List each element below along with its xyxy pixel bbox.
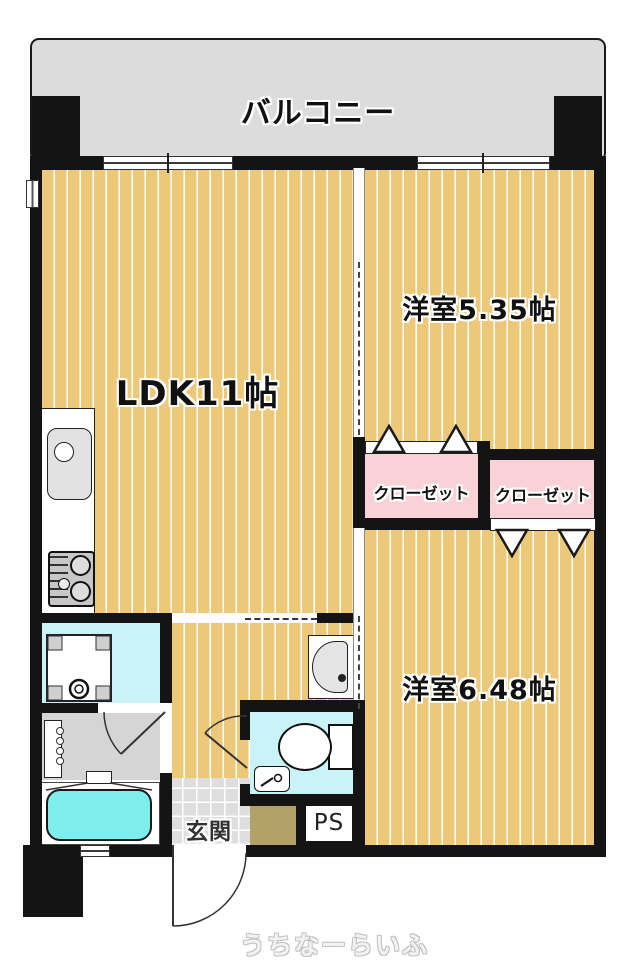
wall-ldk-hall-a [30,613,172,623]
closet2-wall-top [490,449,596,460]
closet2-door [490,518,596,531]
washing-machine-pan-icon [46,634,112,702]
corner-hand-sink-icon [254,766,290,792]
stove-burner2-icon [70,581,91,602]
slide-strip-ldk-western2 [353,528,365,613]
wall-toilet-east [353,712,365,845]
opening-washroom [98,703,172,713]
bath-folding-door-icon [86,771,112,784]
entrance-label: 玄関 [168,814,250,846]
sliding-door-hall-western2-dash [358,616,360,709]
balcony-wall-left [32,96,80,160]
pipe-space-label: PS [306,810,352,836]
wall-toilet-west-a [240,700,250,740]
closet-wall-divider [478,441,490,530]
closet1-door [365,441,478,454]
balcony-wall-right [554,96,602,160]
entrance-door-arc-icon [173,853,246,926]
kitchen-faucet-icon [54,442,74,462]
wall-washroom-top [40,703,98,713]
window-western1-icon [417,156,550,170]
stove-burner1-icon [70,555,91,576]
kitchen-sink-icon [47,428,92,500]
ldk-label: LDK11帖 [42,366,353,415]
closet1-wall-bottom [353,518,478,530]
wall-toilet-top [240,700,365,712]
wall-bottom [30,845,606,857]
wall-right [594,156,606,857]
window-bathroom-icon [80,845,110,857]
entrance-door-opening [172,845,246,857]
wall-toilet-west-b [240,784,250,806]
wall-left [30,156,42,857]
western1-label: 洋室5.35帖 [365,288,594,327]
closet-wall-west [353,437,365,530]
opening-ldk-hall [172,613,245,623]
balcony-label: バルコニー [200,88,436,132]
window-small-left-icon [26,180,39,208]
wall-laundry-east [160,623,172,703]
bathtub-icon [46,789,152,841]
watermark-text: うちなーらいふ [240,926,400,962]
stove-knob-icon [58,578,70,590]
sliding-door-ldk-hall [245,613,317,623]
closet2-label: クローゼット [490,482,596,506]
toilet-bowl-icon [278,723,332,771]
wall-toilet-bottom [240,794,356,806]
window-ldk-icon [103,156,233,170]
western2-label: 洋室6.48帖 [365,668,594,707]
vanity-icon [44,720,62,778]
hall-washbasin-drain-icon [338,674,346,682]
closet1-label: クローゼット [365,480,478,504]
floorplan-canvas: バルコニー クローゼット クローゼット [0,0,636,975]
sliding-partition-dash [358,262,360,435]
